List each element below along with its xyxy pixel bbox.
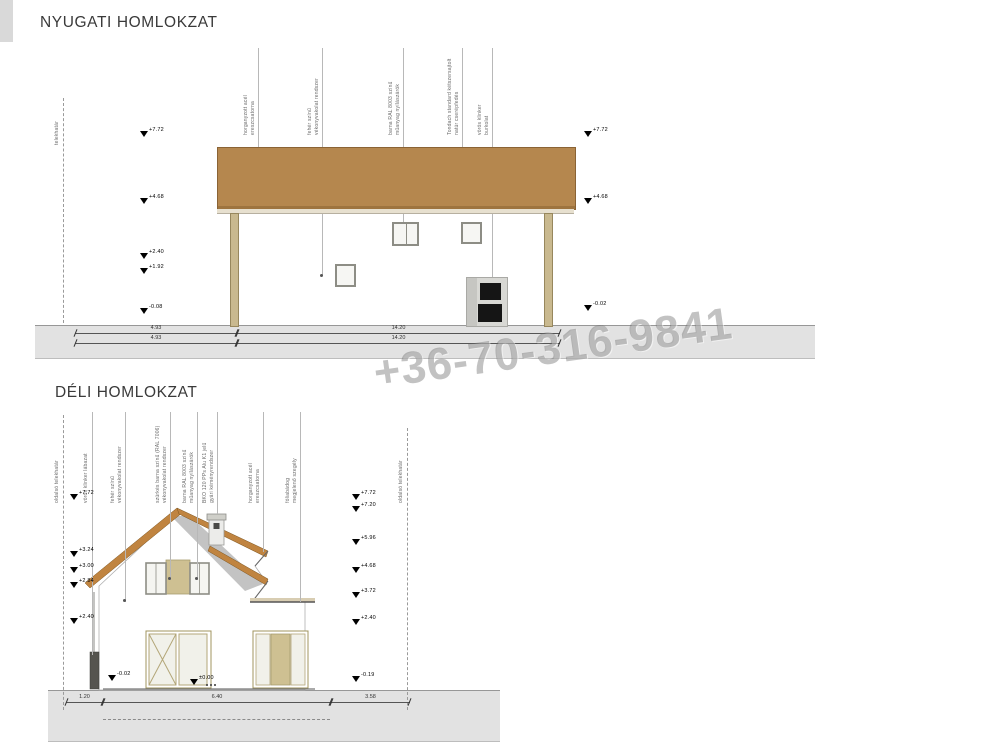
dimension-segment: 6.40: [103, 702, 331, 703]
plot-boundary-line: [407, 428, 408, 710]
threshold-dot: [210, 684, 212, 686]
plot-boundary-line: [63, 415, 64, 710]
leader-line: [92, 412, 93, 655]
annotation-windows: barna RAL 8003 színű műanyag nyílászárók: [182, 408, 197, 503]
annotation-chimney: BKO 120 PPs Alu K1 jelű gyári kéményrend…: [202, 408, 217, 503]
leader-dot: [168, 577, 171, 580]
threshold-dot: [214, 684, 216, 686]
downpipe: [90, 652, 99, 689]
plot-boundary-label: oldalsó telekhatár: [54, 408, 63, 503]
door-leaf-glass: [179, 634, 207, 685]
annotation-flashing: fóliabádog megjelenő szegély: [285, 408, 300, 503]
door-pane: [256, 634, 270, 685]
leader-line: [263, 412, 264, 552]
leader-dot: [195, 577, 198, 580]
drawing-sheet: NYUGATI HOMLOKZAT telekhatár horganyzott…: [0, 0, 1000, 754]
chimney-cap: [207, 514, 226, 520]
foundation-dashed-line: [103, 719, 330, 720]
leader-line: [197, 412, 198, 580]
leader-line: [125, 412, 126, 602]
leader-dot: [123, 599, 126, 602]
leader-line: [170, 412, 171, 580]
dimension-segment: 3.58: [331, 702, 410, 703]
south-house-drawing: [0, 0, 1000, 754]
threshold-dot: [206, 684, 208, 686]
annotation-gutter: horganyzott acél ereszcsatorna: [248, 408, 263, 503]
plot-boundary-label: oldalsó telekhatár: [398, 425, 407, 503]
leader-line: [300, 412, 301, 602]
chimney: [209, 517, 224, 545]
dimension-segment: 1.20: [66, 702, 103, 703]
leader-line: [217, 412, 218, 514]
annotation-plinth: vörös klinker lábazat: [83, 408, 92, 503]
door-pane: [291, 634, 305, 685]
annotation-plaster-white: fehér színű vékonyvakolat rendszer: [110, 408, 125, 503]
door-tan-panel: [271, 634, 290, 685]
chimney-vent: [214, 523, 220, 529]
annotation-plaster-gray: szürkés barna színű (RAL 7006) vékonyvak…: [155, 408, 170, 503]
